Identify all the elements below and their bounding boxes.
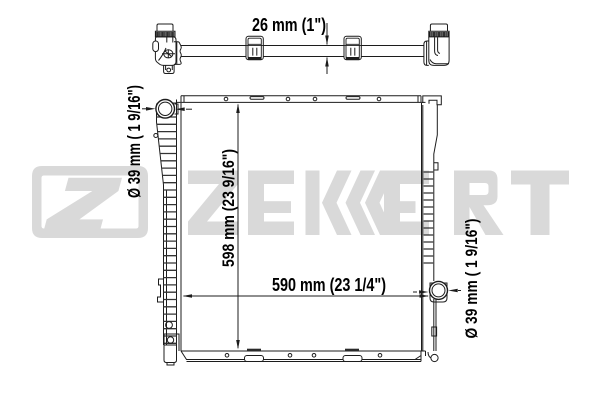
svg-text:Ø 39 mm ( 1 9/16"): Ø 39 mm ( 1 9/16") xyxy=(462,219,481,339)
svg-text:598 mm (23 9/16"): 598 mm (23 9/16") xyxy=(219,149,238,267)
svg-text:26 mm (1"): 26 mm (1") xyxy=(252,14,326,35)
svg-text:Ø 39 mm ( 1 9/16"): Ø 39 mm ( 1 9/16") xyxy=(124,85,144,198)
svg-text:590 mm (23 1/4"): 590 mm (23 1/4") xyxy=(272,274,386,295)
